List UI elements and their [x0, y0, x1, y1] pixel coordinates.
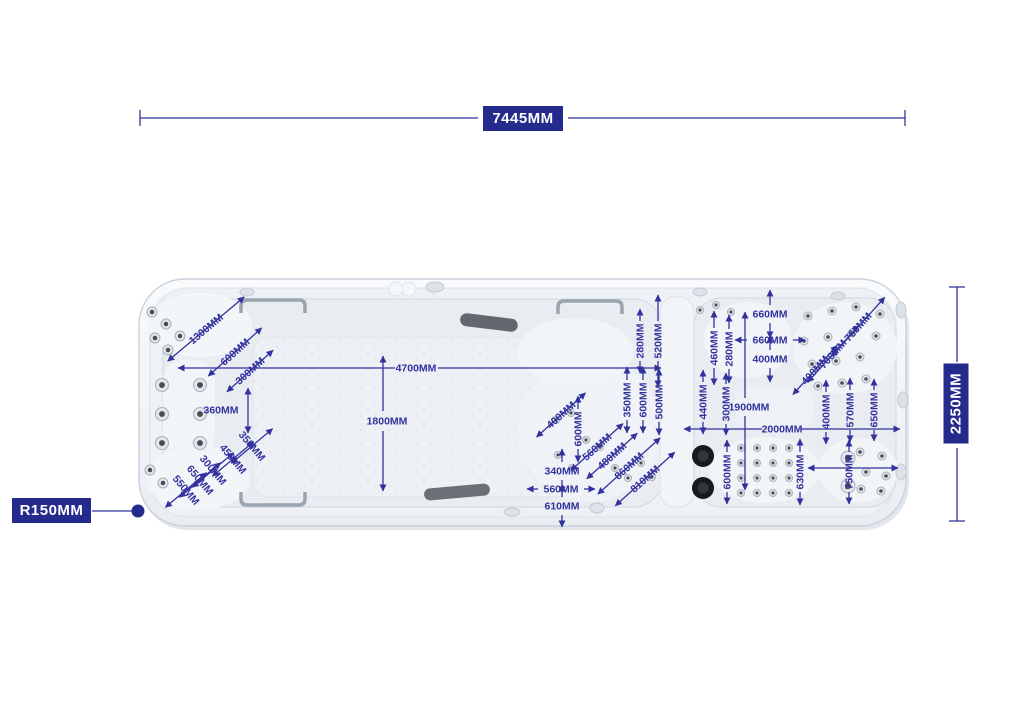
dimension-label: 460MM [709, 330, 721, 365]
dimension-label: 360MM [203, 405, 238, 417]
overall-length-label: 7445MM [483, 106, 563, 131]
dimension-label: 280MM [724, 331, 736, 366]
dimension-label: 1900MM [729, 402, 770, 414]
dimension-label: 610MM [544, 501, 579, 513]
dimension-label: 440MM [698, 384, 710, 419]
dimension-label: 300MM [233, 355, 267, 388]
dimension-label: 560MM [543, 484, 578, 496]
dimension-label: 600MM [638, 382, 650, 417]
dimension-label: 400MM [752, 354, 787, 366]
dimension-label: 1800MM [367, 416, 408, 428]
dimension-label: 340MM [544, 466, 579, 478]
dimension-label: 600MM [218, 336, 252, 369]
dimension-label: 660MM [752, 309, 787, 321]
dimension-label: 650MM [869, 392, 881, 427]
dimension-label: 350MM [622, 382, 634, 417]
corner-radius-label: R150MM [12, 498, 91, 523]
dimension-label: 4700MM [396, 363, 437, 375]
diagram-page: 1300MM600MM300MM360MM350MM450MM300MM650M… [0, 0, 1024, 724]
dimension-label: 600MM [573, 411, 585, 446]
dimension-label: 630MM [795, 454, 807, 489]
dimension-label: 400MM [821, 394, 833, 429]
overall-width-label: 2250MM [944, 364, 969, 444]
dimension-label: 600MM [722, 454, 734, 489]
dimension-label: 570MM [845, 392, 857, 427]
leader-dot [132, 505, 145, 518]
dimension-label: 520MM [653, 323, 665, 358]
dimension-label: 1300MM [187, 311, 226, 347]
dimension-label: 500MM [654, 384, 666, 419]
dimension-label: 280MM [635, 323, 647, 358]
dimension-label: 750MM [844, 454, 856, 489]
dimension-label: 2000MM [762, 424, 803, 436]
